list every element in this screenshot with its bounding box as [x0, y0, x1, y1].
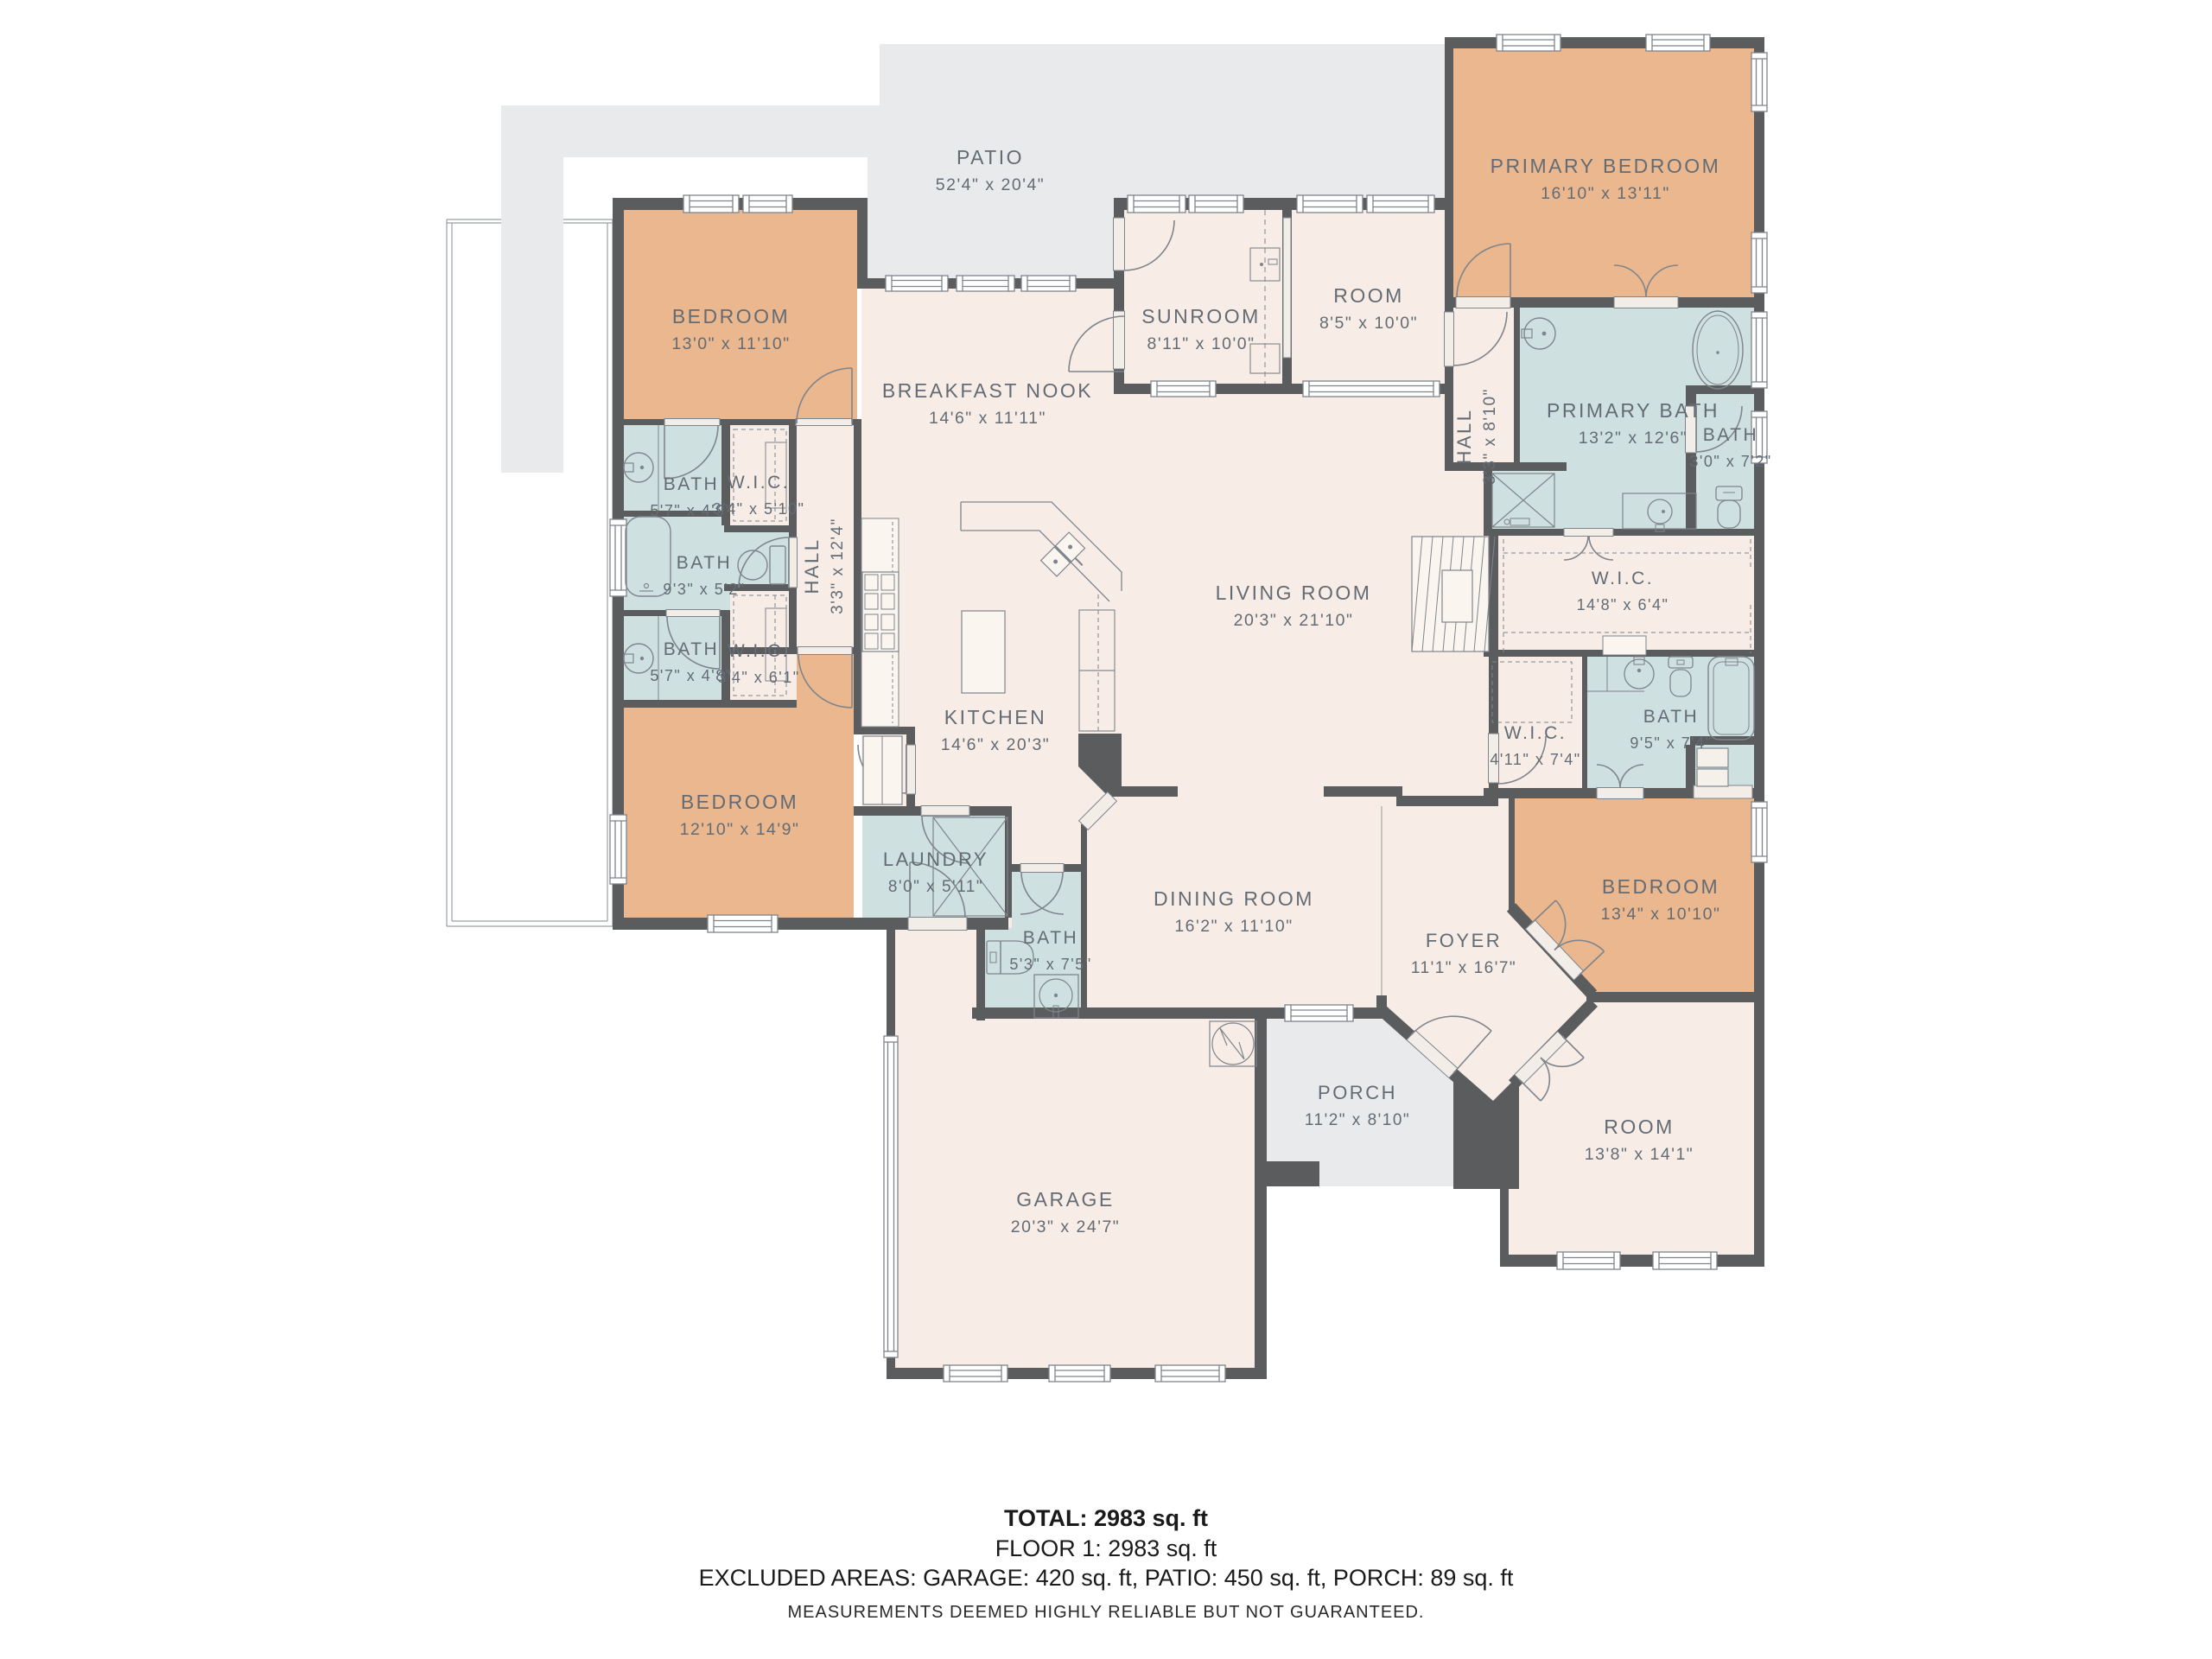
svg-text:HALL: HALL: [1453, 408, 1475, 464]
svg-text:ROOM: ROOM: [1333, 284, 1404, 307]
svg-text:BEDROOM: BEDROOM: [681, 791, 798, 813]
svg-text:9'5" x 7'4": 9'5" x 7'4": [1630, 734, 1712, 752]
svg-text:3'4" x 5'10": 3'4" x 5'10": [713, 500, 805, 518]
svg-text:BEDROOM: BEDROOM: [672, 305, 790, 327]
svg-text:BATH: BATH: [677, 553, 732, 573]
svg-text:BATH: BATH: [664, 474, 719, 494]
svg-text:HALL: HALL: [801, 537, 823, 594]
svg-text:13'8" x 14'1": 13'8" x 14'1": [1585, 1145, 1694, 1164]
svg-text:8'11" x 10'0": 8'11" x 10'0": [1147, 334, 1255, 353]
svg-text:11'2" x 8'10": 11'2" x 8'10": [1305, 1111, 1410, 1129]
svg-text:MEASUREMENTS DEEMED HIGHLY REL: MEASUREMENTS DEEMED HIGHLY RELIABLE BUT …: [788, 1603, 1425, 1622]
svg-text:13'4" x 10'10": 13'4" x 10'10": [1601, 905, 1721, 924]
svg-text:12'10" x 14'9": 12'10" x 14'9": [680, 820, 800, 839]
svg-text:LIVING ROOM: LIVING ROOM: [1216, 582, 1372, 604]
svg-text:13'0" x 11'10": 13'0" x 11'10": [671, 334, 790, 353]
svg-text:16'2" x 11'10": 16'2" x 11'10": [1174, 917, 1293, 936]
svg-text:PRIMARY BEDROOM: PRIMARY BEDROOM: [1491, 155, 1721, 177]
svg-text:KITCHEN: KITCHEN: [944, 706, 1046, 728]
svg-text:BATH: BATH: [664, 639, 719, 659]
svg-text:14'6" x 20'3": 14'6" x 20'3": [941, 735, 1050, 754]
svg-text:16'10" x 13'11": 16'10" x 13'11": [1541, 184, 1670, 203]
svg-text:3'0" x 7'2": 3'0" x 7'2": [1689, 453, 1771, 470]
svg-text:52'4" x 20'4": 52'4" x 20'4": [936, 175, 1045, 194]
svg-text:BATH: BATH: [1703, 425, 1758, 445]
svg-text:W.I.C.: W.I.C.: [1592, 569, 1654, 588]
svg-text:BEDROOM: BEDROOM: [1602, 875, 1719, 898]
svg-text:3'3" x 12'4": 3'3" x 12'4": [829, 518, 847, 614]
svg-text:EXCLUDED AREAS: GARAGE: 420 sq: EXCLUDED AREAS: GARAGE: 420 sq. ft, PATI…: [699, 1565, 1514, 1591]
svg-text:PORCH: PORCH: [1318, 1082, 1397, 1103]
svg-text:BREAKFAST NOOK: BREAKFAST NOOK: [882, 379, 1093, 402]
svg-text:FOYER: FOYER: [1426, 930, 1502, 951]
svg-text:5'3" x 7'5": 5'3" x 7'5": [1009, 956, 1091, 973]
svg-text:BATH: BATH: [1643, 707, 1699, 727]
svg-text:DINING ROOM: DINING ROOM: [1154, 887, 1314, 910]
svg-text:14'6" x 11'11": 14'6" x 11'11": [929, 409, 1046, 428]
svg-text:FLOOR 1: 2983 sq. ft: FLOOR 1: 2983 sq. ft: [995, 1535, 1217, 1561]
svg-text:3'4" x 6'1": 3'4" x 6'1": [717, 669, 799, 686]
svg-text:3'3" x 8'10": 3'3" x 8'10": [1481, 388, 1499, 485]
svg-text:W.I.C.: W.I.C.: [728, 473, 790, 493]
svg-text:ROOM: ROOM: [1604, 1116, 1675, 1138]
svg-text:9'3" x 5'2": 9'3" x 5'2": [663, 581, 745, 598]
svg-text:SUNROOM: SUNROOM: [1141, 305, 1261, 327]
svg-text:W.I.C.: W.I.C.: [1504, 723, 1567, 743]
svg-text:20'3" x 24'7": 20'3" x 24'7": [1011, 1217, 1120, 1236]
svg-text:PATIO: PATIO: [957, 146, 1024, 168]
svg-text:11'1" x 16'7": 11'1" x 16'7": [1411, 959, 1516, 977]
svg-text:8'5" x 10'0": 8'5" x 10'0": [1319, 314, 1418, 333]
svg-text:13'2" x 12'6": 13'2" x 12'6": [1579, 429, 1688, 448]
svg-text:20'3" x 21'10": 20'3" x 21'10": [1234, 611, 1354, 630]
svg-text:PRIMARY BATH: PRIMARY BATH: [1547, 399, 1719, 422]
svg-text:8'0" x 5'11": 8'0" x 5'11": [888, 878, 983, 896]
svg-text:GARAGE: GARAGE: [1016, 1188, 1114, 1211]
svg-text:14'8" x 6'4": 14'8" x 6'4": [1577, 596, 1669, 613]
svg-text:4'11" x 7'4": 4'11" x 7'4": [1490, 751, 1580, 768]
svg-text:W.I.C.: W.I.C.: [728, 641, 790, 661]
svg-text:TOTAL: 2983 sq. ft: TOTAL: 2983 sq. ft: [1004, 1505, 1208, 1531]
svg-text:BATH: BATH: [1023, 928, 1078, 948]
svg-text:LAUNDRY: LAUNDRY: [883, 849, 988, 870]
